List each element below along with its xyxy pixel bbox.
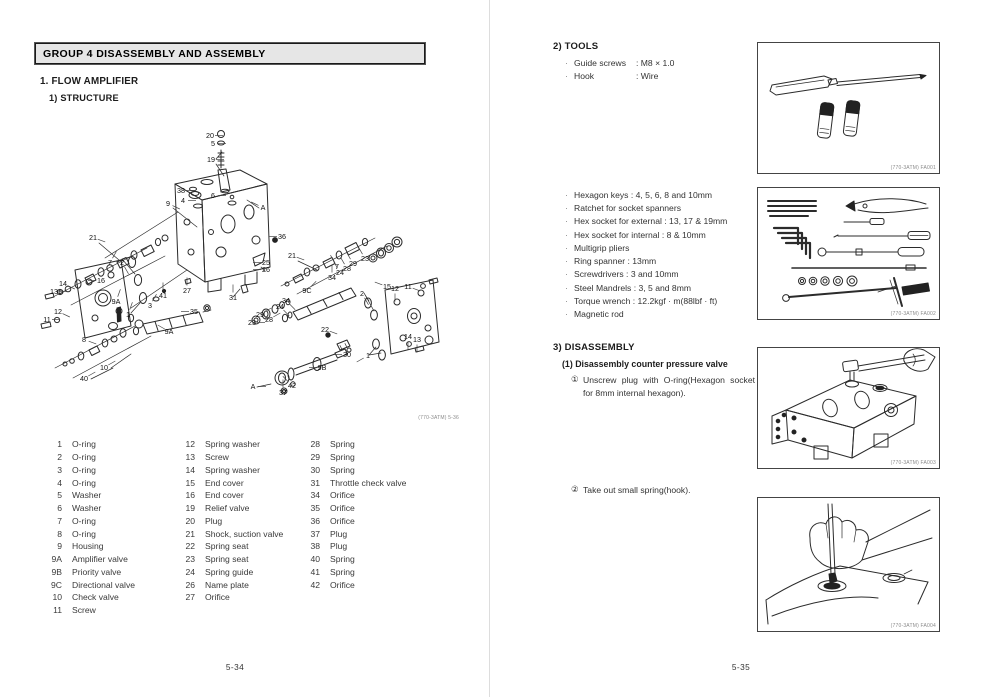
subsection-title: 1) STRUCTURE bbox=[49, 93, 119, 103]
tool-spec-row: ·Hook: Wire bbox=[565, 70, 674, 84]
part-name: O-ring bbox=[72, 452, 96, 462]
disassembly-subheading: (1) Disassembly counter pressure valve bbox=[562, 359, 728, 369]
part-number: 42 bbox=[300, 580, 320, 590]
part-number: 37 bbox=[300, 529, 320, 539]
part-number: 16 bbox=[175, 490, 195, 500]
part-number: 9A bbox=[42, 554, 62, 564]
callout-label: 12 bbox=[54, 307, 62, 316]
part-number: 9B bbox=[42, 567, 62, 577]
callout-label: 14 bbox=[59, 279, 67, 288]
disassembly-heading: 3) DISASSEMBLY bbox=[553, 342, 635, 353]
part-number: 40 bbox=[300, 554, 320, 564]
bullet: · bbox=[565, 190, 574, 200]
step-number: ② bbox=[571, 484, 583, 497]
callout-label: 28 bbox=[265, 315, 273, 324]
part-number: 30 bbox=[300, 465, 320, 475]
part-number: 12 bbox=[175, 439, 195, 449]
section-title: 1. FLOW AMPLIFIER bbox=[40, 76, 138, 87]
tool-item: ·Ring spanner : 13mm bbox=[565, 254, 755, 267]
part-name: Spring bbox=[330, 554, 355, 564]
tool-item-text: Ring spanner : 13mm bbox=[574, 256, 656, 266]
callout-label: 9A bbox=[112, 297, 121, 306]
tool-item: ·Magnetic rod bbox=[565, 308, 755, 321]
part-row: 9Housing bbox=[42, 540, 175, 553]
callout-label: 40 bbox=[80, 374, 88, 383]
part-row: 20Plug bbox=[175, 515, 300, 528]
bullet: · bbox=[565, 243, 574, 253]
part-row: 31Throttle check valve bbox=[300, 476, 460, 489]
group-header-title: GROUP 4 DISASSEMBLY AND ASSEMBLY bbox=[36, 48, 266, 60]
callout-label: 23 bbox=[361, 254, 369, 263]
figure-caption: (770-3ATM) FA004 bbox=[891, 623, 936, 629]
callout-label: 36 bbox=[278, 232, 286, 241]
callout-leader bbox=[108, 361, 115, 365]
part-number: 9C bbox=[42, 580, 62, 590]
callout-leader bbox=[118, 289, 121, 297]
part-row: 15End cover bbox=[175, 476, 300, 489]
callout-leader bbox=[130, 302, 133, 310]
part-row: 21Shock, suction valve bbox=[175, 527, 300, 540]
tool-item: ·Screwdrivers : 3 and 10mm bbox=[565, 268, 755, 281]
tool-item-text: Steel Mandrels : 3, 5 and 8mm bbox=[574, 283, 691, 293]
page-number-right: 5-35 bbox=[630, 662, 852, 672]
structure-exploded-diagram: 2051938469A36217216141312119A13412735252… bbox=[35, 112, 475, 430]
part-name: O-ring bbox=[72, 516, 96, 526]
part-name: Plug bbox=[330, 541, 347, 551]
parts-list: 1O-ring2O-ring3O-ring4O-ring5Washer6Wash… bbox=[42, 438, 462, 617]
part-row: 30Spring bbox=[300, 464, 460, 477]
callout-label: 6 bbox=[211, 191, 215, 200]
part-row: 22Spring seat bbox=[175, 540, 300, 553]
callout-label: 34 bbox=[328, 273, 336, 282]
part-name: Priority valve bbox=[72, 567, 121, 577]
bullet: · bbox=[565, 269, 574, 279]
part-number: 31 bbox=[300, 478, 320, 488]
part-name: Spring bbox=[330, 439, 355, 449]
part-name: Orifice bbox=[330, 503, 355, 513]
part-number: 27 bbox=[175, 592, 195, 602]
part-name: Spring bbox=[330, 452, 355, 462]
part-number: 35 bbox=[300, 503, 320, 513]
callout-label: 9A bbox=[165, 327, 174, 336]
part-row: 24Spring guide bbox=[175, 566, 300, 579]
bullet: · bbox=[565, 256, 574, 266]
part-row: 5Washer bbox=[42, 489, 175, 502]
part-number: 20 bbox=[175, 516, 195, 526]
callout-label: 13 bbox=[50, 287, 58, 296]
callout-label: 11 bbox=[43, 315, 50, 324]
tool-item: ·Hex socket for external : 13, 17 & 19mm bbox=[565, 215, 755, 228]
tool-item-text: Ratchet for socket spanners bbox=[574, 203, 681, 213]
callout-label: A bbox=[261, 203, 266, 212]
part-name: Relief valve bbox=[205, 503, 249, 513]
tools-heading: 2) TOOLS bbox=[553, 41, 598, 52]
callout-leader bbox=[330, 331, 338, 334]
figure-guide-tools: (770-3ATM) FA001 bbox=[757, 42, 940, 174]
callout-leader bbox=[375, 282, 383, 285]
bullet: · bbox=[565, 283, 574, 293]
part-name: Spring seat bbox=[205, 541, 248, 551]
callout-label: 38 bbox=[177, 186, 185, 195]
bullet: · bbox=[565, 230, 574, 240]
callout-label: 2 bbox=[120, 258, 124, 267]
step-text: Take out small spring(hook). bbox=[583, 484, 755, 497]
callout-label: 31 bbox=[229, 293, 237, 302]
part-row: 13Screw bbox=[175, 451, 300, 464]
part-number: 28 bbox=[300, 439, 320, 449]
part-number: 3 bbox=[42, 465, 62, 475]
figure-caption: (770-3ATM) FA001 bbox=[891, 165, 936, 171]
callout-label: 29 bbox=[349, 259, 357, 268]
callout-label: 37 bbox=[279, 388, 287, 397]
part-number: 14 bbox=[175, 465, 195, 475]
part-name: Plug bbox=[205, 516, 222, 526]
callout-leader bbox=[125, 267, 129, 274]
part-row: 3O-ring bbox=[42, 464, 175, 477]
part-number: 34 bbox=[300, 490, 320, 500]
part-name: Washer bbox=[72, 490, 101, 500]
callout-leader bbox=[88, 372, 95, 376]
part-row: 27Orifice bbox=[175, 591, 300, 604]
callout-label: 1 bbox=[126, 310, 130, 319]
part-name: Housing bbox=[72, 541, 104, 551]
part-name: Spring washer bbox=[205, 465, 260, 475]
callout-leader bbox=[290, 304, 296, 310]
part-row: 41Spring bbox=[300, 566, 460, 579]
part-row: 8O-ring bbox=[42, 527, 175, 540]
part-name: Spring bbox=[330, 567, 355, 577]
bullet: · bbox=[565, 216, 574, 226]
callout-leader bbox=[63, 314, 70, 317]
part-row: 28Spring bbox=[300, 438, 460, 451]
part-name: Spring seat bbox=[205, 554, 248, 564]
callout-leader bbox=[297, 257, 305, 260]
part-name: Spring guide bbox=[205, 567, 253, 577]
part-number: 21 bbox=[175, 529, 195, 539]
part-row: 6Washer bbox=[42, 502, 175, 515]
bullet: · bbox=[565, 203, 574, 213]
part-row: 40Spring bbox=[300, 553, 460, 566]
callout-label: 9C bbox=[302, 286, 311, 295]
part-name: Name plate bbox=[205, 580, 249, 590]
disassembly-step-2: ② Take out small spring(hook). bbox=[571, 484, 755, 497]
part-number: 22 bbox=[175, 541, 195, 551]
group-header: GROUP 4 DISASSEMBLY AND ASSEMBLY bbox=[35, 43, 425, 64]
part-number: 11 bbox=[42, 605, 62, 615]
part-number: 5 bbox=[42, 490, 62, 500]
part-number: 41 bbox=[300, 567, 320, 577]
callout-label: 42 bbox=[288, 381, 296, 390]
part-name: Throttle check valve bbox=[330, 478, 406, 488]
callout-label: 35 bbox=[190, 307, 198, 316]
part-name: Spring bbox=[330, 465, 355, 475]
callout-label: 8 bbox=[82, 335, 86, 344]
part-row: 2O-ring bbox=[42, 451, 175, 464]
callout-label: 9B bbox=[318, 363, 327, 372]
part-row: 4O-ring bbox=[42, 476, 175, 489]
tool-item: ·Ratchet for socket spanners bbox=[565, 201, 755, 214]
part-number: 6 bbox=[42, 503, 62, 513]
part-row: 9BPriority valve bbox=[42, 566, 175, 579]
part-number: 4 bbox=[42, 478, 62, 488]
part-number: 1 bbox=[42, 439, 62, 449]
callout-leader bbox=[89, 341, 97, 344]
part-name: End cover bbox=[205, 490, 244, 500]
tool-item: ·Torque wrench : 12.2kgf · m(88lbf · ft) bbox=[565, 294, 755, 307]
tool-item: ·Hexagon keys : 4, 5, 6, 8 and 10mm bbox=[565, 188, 755, 201]
part-name: Directional valve bbox=[72, 580, 135, 590]
part-row: 38Plug bbox=[300, 540, 460, 553]
manual-spread: GROUP 4 DISASSEMBLY AND ASSEMBLY 1. FLOW… bbox=[0, 0, 982, 697]
part-number: 13 bbox=[175, 452, 195, 462]
part-number: 19 bbox=[175, 503, 195, 513]
callout-label: 7 bbox=[108, 258, 112, 267]
part-row: 11Screw bbox=[42, 604, 175, 617]
figure-caption: (770-3ATM) FA003 bbox=[891, 460, 936, 466]
take-out-spring-drawing bbox=[758, 498, 937, 629]
part-row: 26Name plate bbox=[175, 578, 300, 591]
figure-caption: (770-3ATM) FA002 bbox=[891, 311, 936, 317]
callout-label: 13 bbox=[413, 335, 421, 344]
tool-item-text: Hex socket for external : 13, 17 & 19mm bbox=[574, 216, 727, 226]
part-name: Washer bbox=[72, 503, 101, 513]
tool-item: ·Steel Mandrels : 3, 5 and 8mm bbox=[565, 281, 755, 294]
part-number: 7 bbox=[42, 516, 62, 526]
callout-leader bbox=[357, 358, 364, 362]
tool-item-text: Screwdrivers : 3 and 10mm bbox=[574, 269, 679, 279]
callout-label: 21 bbox=[89, 233, 97, 242]
part-name: Spring washer bbox=[205, 439, 260, 449]
callout-label: 15 bbox=[383, 282, 391, 291]
callout-label: 22 bbox=[321, 325, 329, 334]
part-number: 26 bbox=[175, 580, 195, 590]
tool-item-text: Magnetic rod bbox=[574, 309, 624, 319]
part-number: 23 bbox=[175, 554, 195, 564]
callout-label: 1 bbox=[366, 351, 370, 360]
part-name: Shock, suction valve bbox=[205, 529, 283, 539]
page-number-left: 5-34 bbox=[35, 662, 435, 672]
part-number: 15 bbox=[175, 478, 195, 488]
bullet: · bbox=[565, 296, 574, 306]
part-name: O-ring bbox=[72, 529, 96, 539]
callout-label: 11 bbox=[404, 282, 411, 291]
callout-label: 21 bbox=[288, 251, 296, 260]
part-row: 9CDirectional valve bbox=[42, 578, 175, 591]
tool-item-text: Hexagon keys : 4, 5, 6, 8 and 10mm bbox=[574, 190, 712, 200]
figure-take-out-spring: (770-3ATM) FA004 bbox=[757, 497, 940, 632]
tool-spec-value: : M8 × 1.0 bbox=[636, 58, 674, 68]
part-name: Screw bbox=[72, 605, 96, 615]
tool-item: ·Hex socket for internal : 8 & 10mm bbox=[565, 228, 755, 241]
diagram-caption: (770-3ATM) 5-36 bbox=[418, 415, 459, 421]
callout-label: A bbox=[251, 382, 256, 391]
part-row: 29Spring bbox=[300, 451, 460, 464]
part-name: Orifice bbox=[330, 490, 355, 500]
tool-set-drawing bbox=[758, 188, 937, 317]
callout-label: 29 bbox=[256, 310, 264, 319]
part-number: 10 bbox=[42, 592, 62, 602]
part-row: 36Orifice bbox=[300, 515, 460, 528]
part-name: End cover bbox=[205, 478, 244, 488]
part-number: 29 bbox=[300, 452, 320, 462]
part-row: 42Orifice bbox=[300, 578, 460, 591]
callout-label: 19 bbox=[207, 155, 215, 164]
part-row: 10Check valve bbox=[42, 591, 175, 604]
part-row: 23Spring seat bbox=[175, 553, 300, 566]
part-number: 2 bbox=[42, 452, 62, 462]
callout-label: 30 bbox=[343, 350, 351, 359]
part-row: 12Spring washer bbox=[175, 438, 300, 451]
bullet: · bbox=[565, 309, 574, 319]
part-row: 37Plug bbox=[300, 527, 460, 540]
parts-column: 1O-ring2O-ring3O-ring4O-ring5Washer6Wash… bbox=[42, 438, 175, 617]
part-row: 14Spring washer bbox=[175, 464, 300, 477]
step-text: Unscrew plug with O-ring(Hexagon socket … bbox=[583, 374, 755, 400]
bullet: · bbox=[565, 71, 574, 81]
tool-spec-label: Guide screws bbox=[574, 58, 636, 68]
exploded-view-drawing: 2051938469A36217216141312119A13412735252… bbox=[35, 112, 475, 430]
callout-leader bbox=[98, 239, 106, 242]
part-name: Orifice bbox=[205, 592, 230, 602]
callout-label: 12 bbox=[391, 284, 399, 293]
part-number: 24 bbox=[175, 567, 195, 577]
callout-label: 3 bbox=[148, 301, 152, 310]
page-divider bbox=[489, 0, 490, 697]
callout-label: 27 bbox=[183, 286, 191, 295]
tool-spec-label: Hook bbox=[574, 71, 636, 81]
callout-leader bbox=[413, 288, 421, 291]
tool-spec-row: ·Guide screws: M8 × 1.0 bbox=[565, 56, 674, 70]
callout-label: 16 bbox=[97, 276, 105, 285]
parts-column: 28Spring29Spring30Spring31Throttle check… bbox=[300, 438, 460, 617]
callout-label: 23 bbox=[248, 318, 256, 327]
callout-label: 26 bbox=[262, 265, 270, 274]
tool-item-text: Hex socket for internal : 8 & 10mm bbox=[574, 230, 706, 240]
part-name: Orifice bbox=[330, 516, 355, 526]
part-row: 1O-ring bbox=[42, 438, 175, 451]
callout-label: 10 bbox=[100, 363, 108, 372]
part-number: 9 bbox=[42, 541, 62, 551]
part-name: O-ring bbox=[72, 439, 96, 449]
part-row: 16End cover bbox=[175, 489, 300, 502]
tool-item-text: Multigrip pliers bbox=[574, 243, 629, 253]
parts-column: 12Spring washer13Screw14Spring washer15E… bbox=[175, 438, 300, 617]
tool-spec-value: : Wire bbox=[636, 71, 658, 81]
part-row: 9AAmplifier valve bbox=[42, 553, 175, 566]
part-row: 19Relief valve bbox=[175, 502, 300, 515]
part-name: O-ring bbox=[72, 465, 96, 475]
part-row: 7O-ring bbox=[42, 515, 175, 528]
callout-label: 4 bbox=[181, 196, 185, 205]
part-number: 8 bbox=[42, 529, 62, 539]
callout-label: 2 bbox=[360, 289, 364, 298]
part-name: O-ring bbox=[72, 478, 96, 488]
bullet: · bbox=[565, 58, 574, 68]
part-row: 35Orifice bbox=[300, 502, 460, 515]
part-name: Orifice bbox=[330, 580, 355, 590]
part-row: 34Orifice bbox=[300, 489, 460, 502]
unscrew-plug-drawing bbox=[758, 348, 937, 466]
callout-label: 5 bbox=[211, 139, 215, 148]
figure-tool-set: (770-3ATM) FA002 bbox=[757, 187, 940, 320]
disassembly-step-1: ① Unscrew plug with O-ring(Hexagon socke… bbox=[571, 374, 755, 400]
tool-item-text: Torque wrench : 12.2kgf · m(88lbf · ft) bbox=[574, 296, 717, 306]
step-number: ① bbox=[571, 374, 583, 400]
part-name: Amplifier valve bbox=[72, 554, 128, 564]
callout-label: 14 bbox=[404, 332, 412, 341]
part-name: Plug bbox=[330, 529, 347, 539]
tool-item: ·Multigrip pliers bbox=[565, 241, 755, 254]
figure-unscrew-plug: (770-3ATM) FA003 bbox=[757, 347, 940, 469]
part-name: Screw bbox=[205, 452, 229, 462]
callout-label: 34 bbox=[282, 296, 290, 305]
callout-label: 9 bbox=[166, 199, 170, 208]
tools-list: ·Hexagon keys : 4, 5, 6, 8 and 10mm·Ratc… bbox=[565, 188, 755, 321]
part-number: 38 bbox=[300, 541, 320, 551]
tools-specs: ·Guide screws: M8 × 1.0·Hook: Wire bbox=[565, 56, 674, 83]
guide-screws-hook-drawing bbox=[758, 43, 937, 171]
part-name: Check valve bbox=[72, 592, 119, 602]
callout-label: 41 bbox=[159, 291, 167, 300]
part-number: 36 bbox=[300, 516, 320, 526]
